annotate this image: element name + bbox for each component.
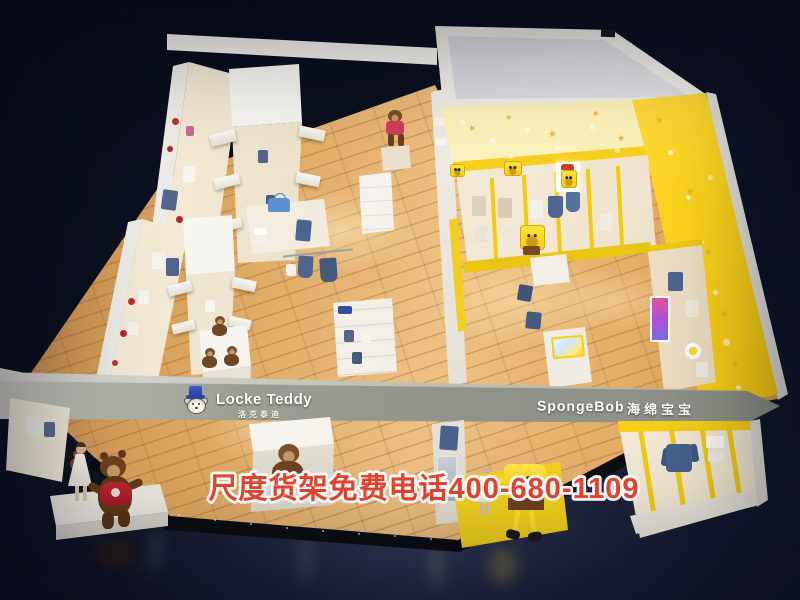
- child-mannequin: [60, 442, 90, 504]
- clothes-item-denim: [517, 284, 534, 302]
- star-icon: ★: [703, 247, 712, 257]
- hanging-denim-dress: [319, 257, 338, 282]
- locke-teddy-brand-cn: 洛克泰迪: [216, 409, 304, 420]
- locke-teddy-brand: Locke Teddy: [216, 391, 312, 408]
- spongebob-sign: [551, 335, 585, 360]
- star-icon: ★: [547, 129, 557, 140]
- clothes-item-denim: [352, 352, 362, 364]
- teddy-head: [100, 456, 126, 478]
- folded-stack-white: [708, 452, 724, 462]
- hanging-clothes-white: [600, 214, 612, 231]
- hanging-denim-dress: [548, 196, 563, 218]
- watermark-label: 尺度货架免费电话400-680-1109: [209, 471, 640, 505]
- clothes-item-white: [128, 322, 138, 335]
- spongebob-round-sign-icon: [684, 342, 702, 360]
- clothes-item-denim: [166, 258, 179, 276]
- hanging-clothes-white: [505, 228, 517, 244]
- teddy-leg: [102, 512, 114, 529]
- hanging-denim: [439, 425, 459, 450]
- hanging-clothes-white: [475, 226, 487, 242]
- star-icon: ★: [731, 360, 740, 370]
- wall-bubble-dots: [460, 120, 465, 125]
- teddy-bear-plush: [212, 316, 227, 336]
- hanging-clothes-khaki: [498, 198, 512, 218]
- hanging-denim-dress: [566, 192, 580, 212]
- teddy-plush-red: [172, 118, 179, 125]
- teddy-mannequin-legs: [398, 134, 404, 146]
- clothes-item-white: [138, 290, 149, 304]
- hanging-dress-white: [26, 416, 41, 438]
- teddy-mannequin-red-shirt: [386, 121, 404, 135]
- clothes-item-denim: [258, 150, 268, 163]
- handbag-blue: [268, 198, 290, 212]
- clothes-item-pink: [186, 126, 194, 136]
- spongebob-poster-figure: [561, 170, 577, 188]
- hanging-clothes-denim: [44, 422, 55, 437]
- teddy-leg: [118, 510, 130, 527]
- bear-eye: [198, 403, 200, 405]
- reflection-streak: [488, 548, 518, 584]
- teddy-plush-red: [112, 360, 118, 366]
- star-icon: ★: [617, 134, 626, 144]
- teddy-mannequin-legs: [388, 134, 394, 146]
- reflection-streak: [430, 545, 444, 589]
- floor-edge-lights: [178, 514, 180, 516]
- spongebob-head-icon: [450, 164, 465, 177]
- teddy-plush-red: [120, 330, 127, 337]
- hanging-bag-white: [286, 264, 296, 276]
- mannequin-hair: [76, 442, 86, 447]
- teddy-plush-red: [176, 216, 183, 223]
- spongebob-shoe: [505, 528, 521, 540]
- clothes-item-denim: [161, 189, 179, 211]
- clothes-item-white: [362, 332, 371, 343]
- spongebob-shoe: [527, 531, 542, 542]
- spongebob-plush-pants: [523, 246, 540, 255]
- star-icon: ★: [685, 187, 696, 198]
- teddy-bear-plush: [224, 346, 239, 366]
- wall-bubble-dots: [668, 150, 673, 155]
- bear-eye: [192, 403, 194, 405]
- clothes-item-denim: [525, 311, 542, 329]
- clothes-item-white: [205, 300, 215, 312]
- bear-nose: [195, 407, 198, 410]
- spongebob-head-icon: [504, 161, 522, 176]
- teddy-reflection: [94, 538, 138, 568]
- teddy-bear-plush: [202, 348, 217, 368]
- spongebob-brand-cn: 海绵宝宝: [627, 399, 695, 419]
- star-icon: ★: [504, 113, 512, 122]
- store-render-scene: ★ ★ ★ ★ ★ ★ ★ ★ ★ ★: [0, 0, 800, 600]
- hanging-clothes-white: [696, 362, 708, 377]
- mannequin-dress: [68, 454, 92, 486]
- folded-stack-white: [254, 228, 267, 235]
- spongebob-brand: SpongeBob: [537, 398, 625, 415]
- hanging-clothes-khaki: [472, 196, 486, 216]
- clothes-item-white: [152, 252, 165, 269]
- hanging-denim-dress: [668, 272, 683, 291]
- folded-stack-white: [253, 237, 266, 244]
- teddy-plush-red: [167, 146, 173, 152]
- spongebob-leg: [528, 510, 536, 532]
- mannequin-legs: [83, 486, 87, 501]
- clothes-item-white: [183, 166, 195, 182]
- hanging-denim-dress: [297, 256, 313, 279]
- brand-sign-small: [338, 306, 352, 314]
- spongebob-leg: [512, 510, 520, 532]
- character-poster: [650, 296, 670, 342]
- clothes-item-denim: [344, 330, 354, 342]
- reflection-streak: [300, 534, 312, 584]
- hanging-clothes-white: [530, 200, 543, 219]
- mannequin-legs: [75, 486, 79, 501]
- teddy-sweater-print: [111, 488, 120, 497]
- locke-teddy-logo-icon: [181, 386, 209, 420]
- fitting-room-door-gap: [601, 29, 615, 37]
- watermark-text: 尺度货架免费电话400-680-1109: [158, 462, 690, 512]
- teddy-bear-mannequin-large: [90, 448, 142, 532]
- hanging-clothes-white: [686, 300, 699, 317]
- folded-stack-white: [706, 436, 724, 448]
- clothes-item-denim: [295, 219, 312, 241]
- shelf-box-small: [436, 138, 447, 146]
- teddy-plush-red: [128, 298, 135, 305]
